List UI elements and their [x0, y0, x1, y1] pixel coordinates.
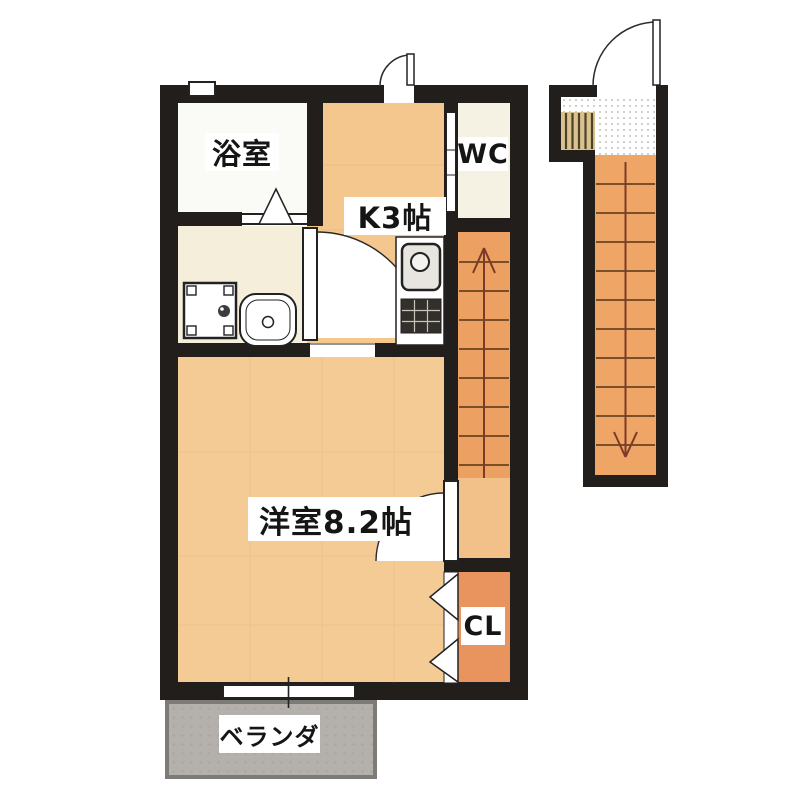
wall-segment: [307, 103, 323, 226]
wall-segment: [583, 150, 595, 487]
external-stairs-floor: [595, 155, 656, 475]
western-room-label: 洋室8.2帖: [248, 497, 424, 541]
wall-segment: [656, 85, 668, 487]
wall-segment: [510, 85, 528, 700]
bathroom-window: [188, 81, 216, 97]
external-door-opening: [597, 85, 656, 97]
entrance-door-opening: [384, 85, 414, 103]
internal-stairs-floor: [458, 232, 510, 478]
stair-landing-floor: [458, 478, 510, 558]
bathroom-label: 浴室: [205, 133, 279, 171]
bathroom-door: [242, 213, 307, 225]
wall-segment: [160, 85, 178, 700]
toilet-label: WC: [458, 137, 508, 171]
closet-label: CL: [461, 607, 505, 645]
toilet-door: [446, 112, 456, 212]
wall-segment: [178, 343, 310, 357]
wall-segment: [444, 218, 528, 232]
wall-segment: [178, 212, 242, 226]
kitchen-label: K3帖: [344, 197, 446, 235]
wall-segment: [583, 475, 668, 487]
veranda-label: ベランダ: [219, 715, 320, 753]
floor-plan: 浴室 K3帖 WC 洋室8.2帖 CL ベランダ: [0, 0, 800, 800]
entrance-door: [380, 54, 414, 86]
balcony-sliding-window: [222, 684, 356, 699]
washroom-floor: [178, 226, 307, 343]
porch-steps: [561, 112, 595, 150]
external-entrance-door: [593, 20, 660, 86]
wall-segment: [444, 558, 528, 572]
kitchen-room-passage: [310, 343, 375, 357]
